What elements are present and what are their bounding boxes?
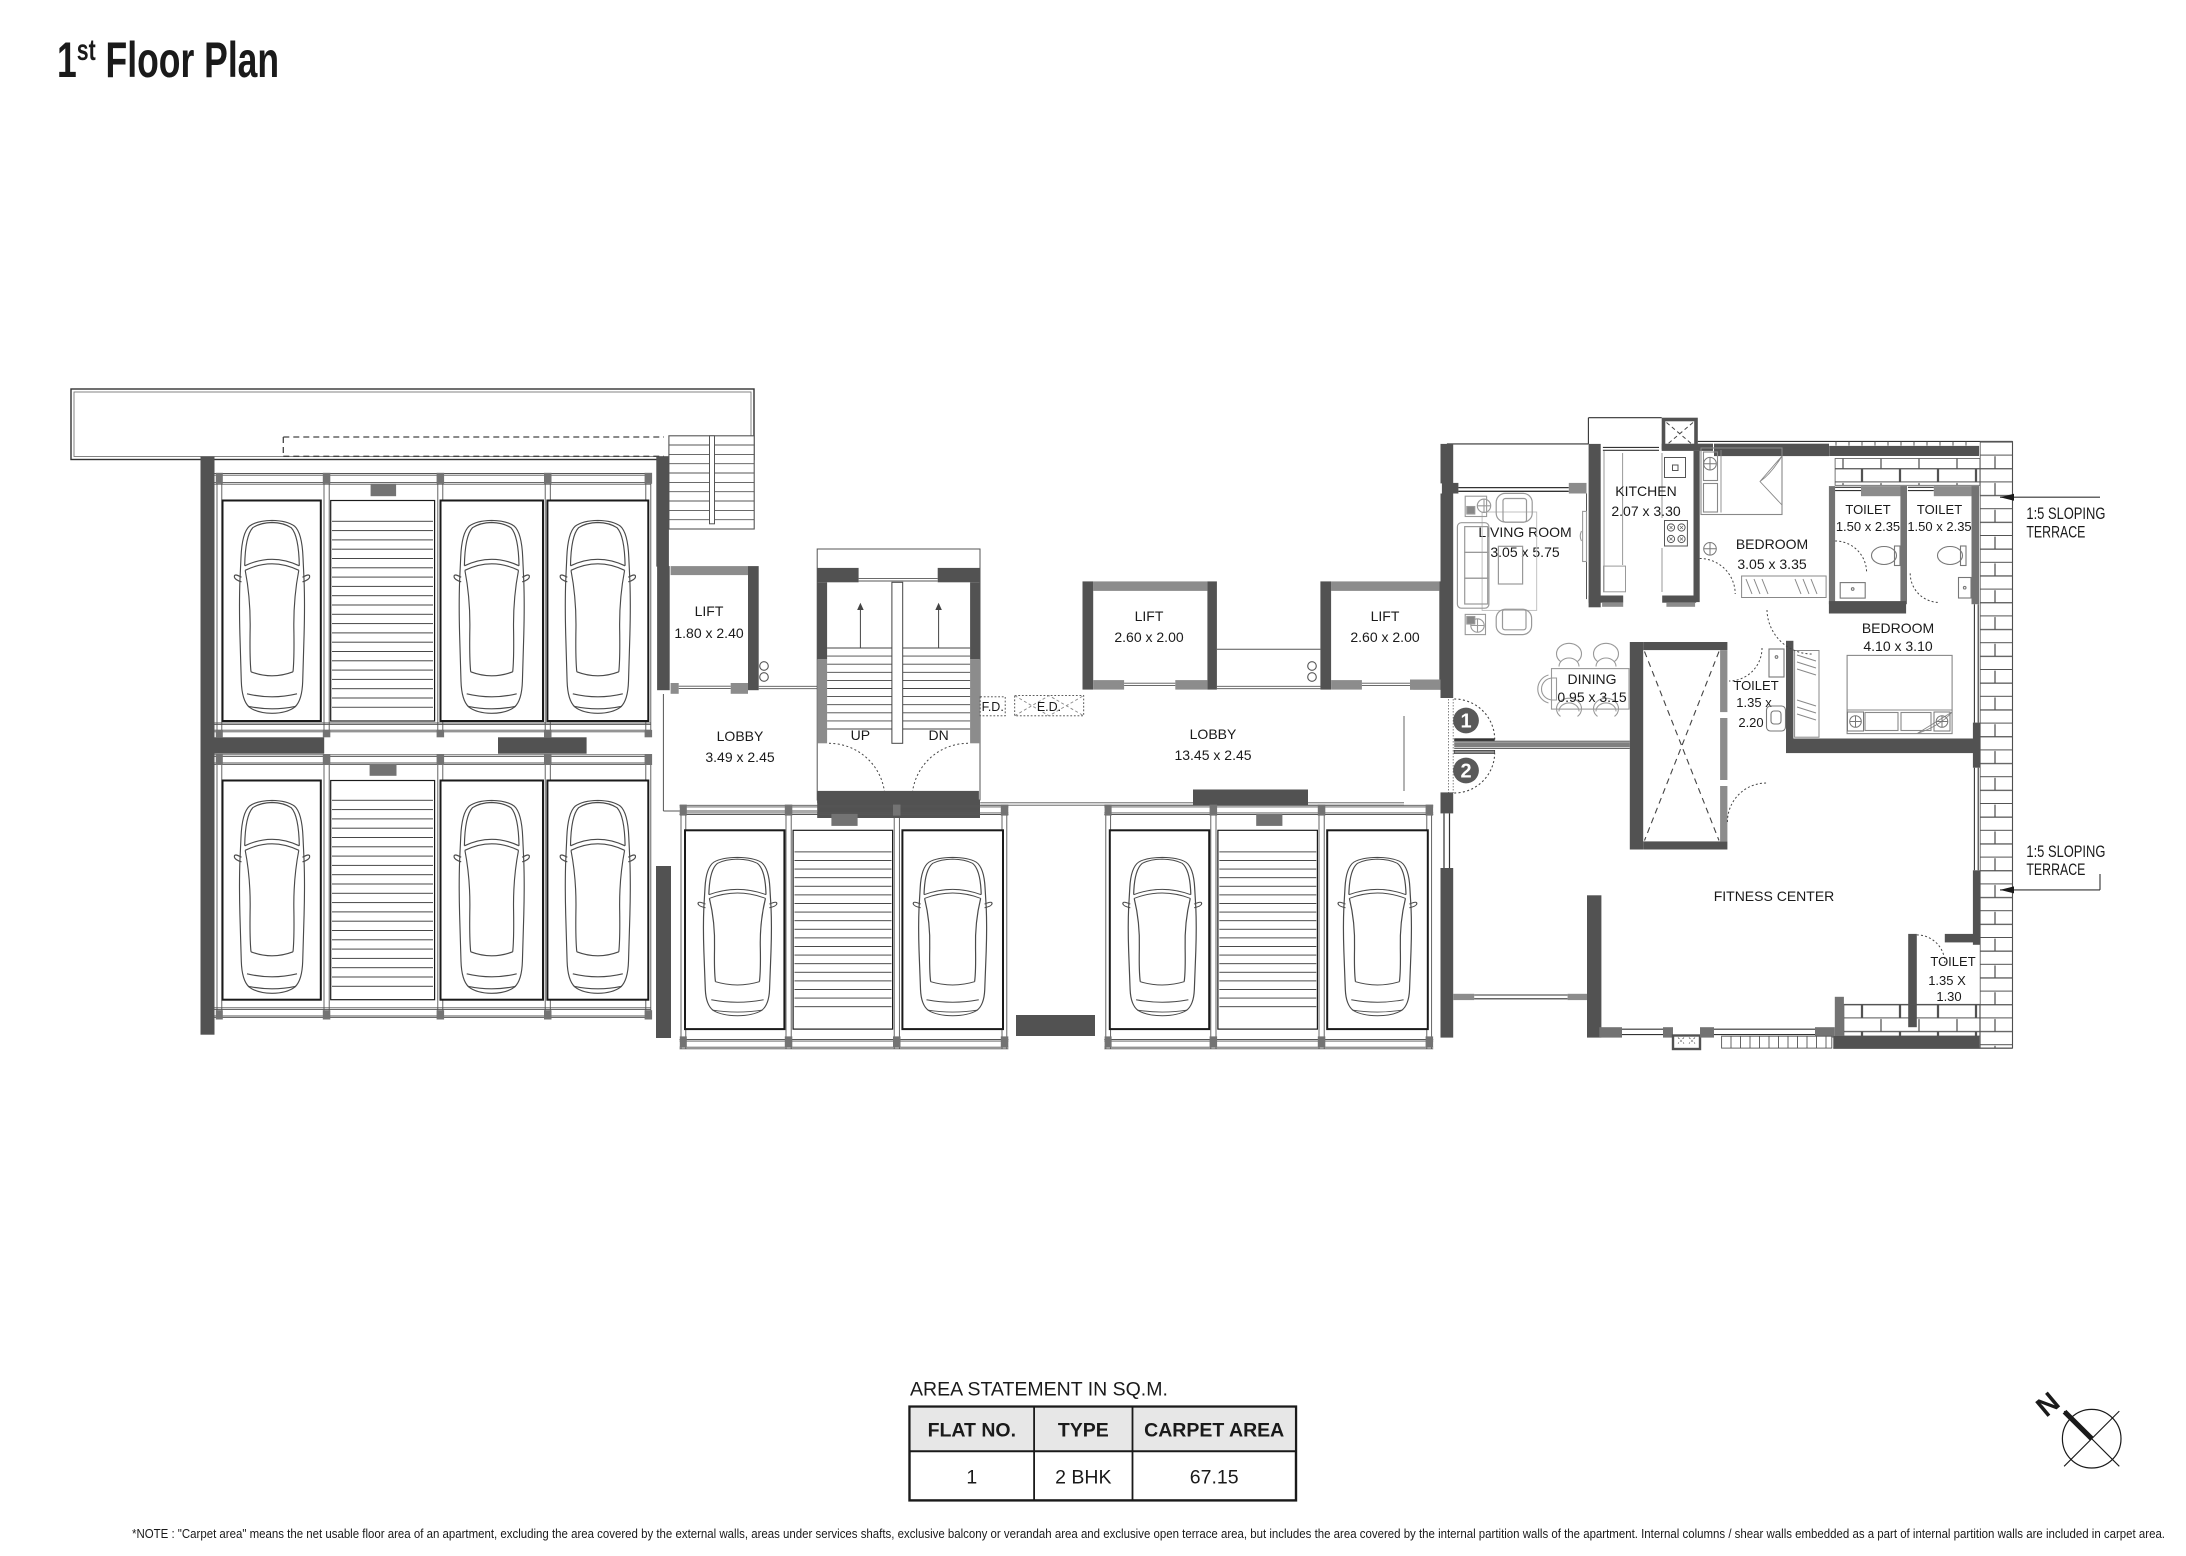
svg-text:TERRACE: TERRACE [2026, 860, 2085, 879]
svg-text:BEDROOM: BEDROOM [1862, 620, 1934, 636]
svg-text:LIVING ROOM: LIVING ROOM [1478, 524, 1571, 540]
svg-text:LOBBY: LOBBY [1190, 726, 1237, 742]
svg-text:1.80 x 2.40: 1.80 x 2.40 [674, 625, 743, 641]
svg-text:3.05 x 3.35: 3.05 x 3.35 [1737, 556, 1806, 572]
svg-text:BEDROOM: BEDROOM [1736, 536, 1808, 552]
svg-text:DINING: DINING [1568, 671, 1617, 687]
svg-text:CARPET AREA: CARPET AREA [1144, 1420, 1284, 1442]
svg-text:1: 1 [1460, 711, 1471, 733]
svg-text:KITCHEN: KITCHEN [1615, 483, 1676, 499]
svg-text:2.20: 2.20 [1738, 715, 1763, 730]
svg-text:UP: UP [851, 727, 870, 743]
svg-text:2.60 x 2.00: 2.60 x 2.00 [1350, 629, 1419, 645]
svg-text:*NOTE : "Carpet area" means th: *NOTE : "Carpet area" means the net usab… [132, 1526, 2165, 1541]
svg-text:1:5 SLOPING: 1:5 SLOPING [2026, 842, 2105, 861]
svg-text:1:5 SLOPING: 1:5 SLOPING [2026, 504, 2105, 523]
svg-text:2: 2 [1460, 761, 1471, 783]
svg-text:FLAT NO.: FLAT NO. [928, 1420, 1016, 1442]
svg-text:1.50 x 2.35: 1.50 x 2.35 [1907, 519, 1971, 534]
svg-text:LIFT: LIFT [1135, 608, 1164, 624]
svg-text:TOILET: TOILET [1917, 502, 1962, 517]
svg-text:TOILET: TOILET [1930, 954, 1975, 969]
svg-text:2.60 x 2.00: 2.60 x 2.00 [1114, 629, 1183, 645]
svg-text:1: 1 [966, 1467, 977, 1489]
svg-text:E.D.: E.D. [1037, 700, 1061, 714]
svg-text:1.50 x 2.35: 1.50 x 2.35 [1836, 519, 1900, 534]
svg-text:67.15: 67.15 [1190, 1467, 1239, 1489]
svg-text:TOILET: TOILET [1845, 502, 1890, 517]
svg-text:FITNESS CENTER: FITNESS CENTER [1714, 888, 1835, 904]
svg-text:DN: DN [928, 727, 948, 743]
svg-text:1.30: 1.30 [1936, 989, 1961, 1004]
svg-text:3.49 x 2.45: 3.49 x 2.45 [705, 749, 774, 765]
svg-text:F.D.: F.D. [982, 700, 1004, 714]
svg-text:TYPE: TYPE [1058, 1420, 1109, 1442]
svg-text:AREA STATEMENT IN SQ.M.: AREA STATEMENT IN SQ.M. [910, 1379, 1168, 1401]
svg-text:LIFT: LIFT [1371, 608, 1400, 624]
svg-text:2 BHK: 2 BHK [1055, 1467, 1111, 1489]
svg-text:TOILET: TOILET [1733, 678, 1778, 693]
svg-text:4.10 x 3.10: 4.10 x 3.10 [1863, 638, 1932, 654]
svg-text:13.45 x 2.45: 13.45 x 2.45 [1174, 747, 1251, 763]
svg-text:LOBBY: LOBBY [717, 728, 764, 744]
svg-text:0.95 x 3.15: 0.95 x 3.15 [1557, 689, 1626, 705]
svg-text:2.07 x 3.30: 2.07 x 3.30 [1611, 503, 1680, 519]
svg-text:1.35 X: 1.35 X [1928, 973, 1966, 988]
svg-text:LIFT: LIFT [695, 603, 724, 619]
svg-text:TERRACE: TERRACE [2026, 522, 2085, 541]
